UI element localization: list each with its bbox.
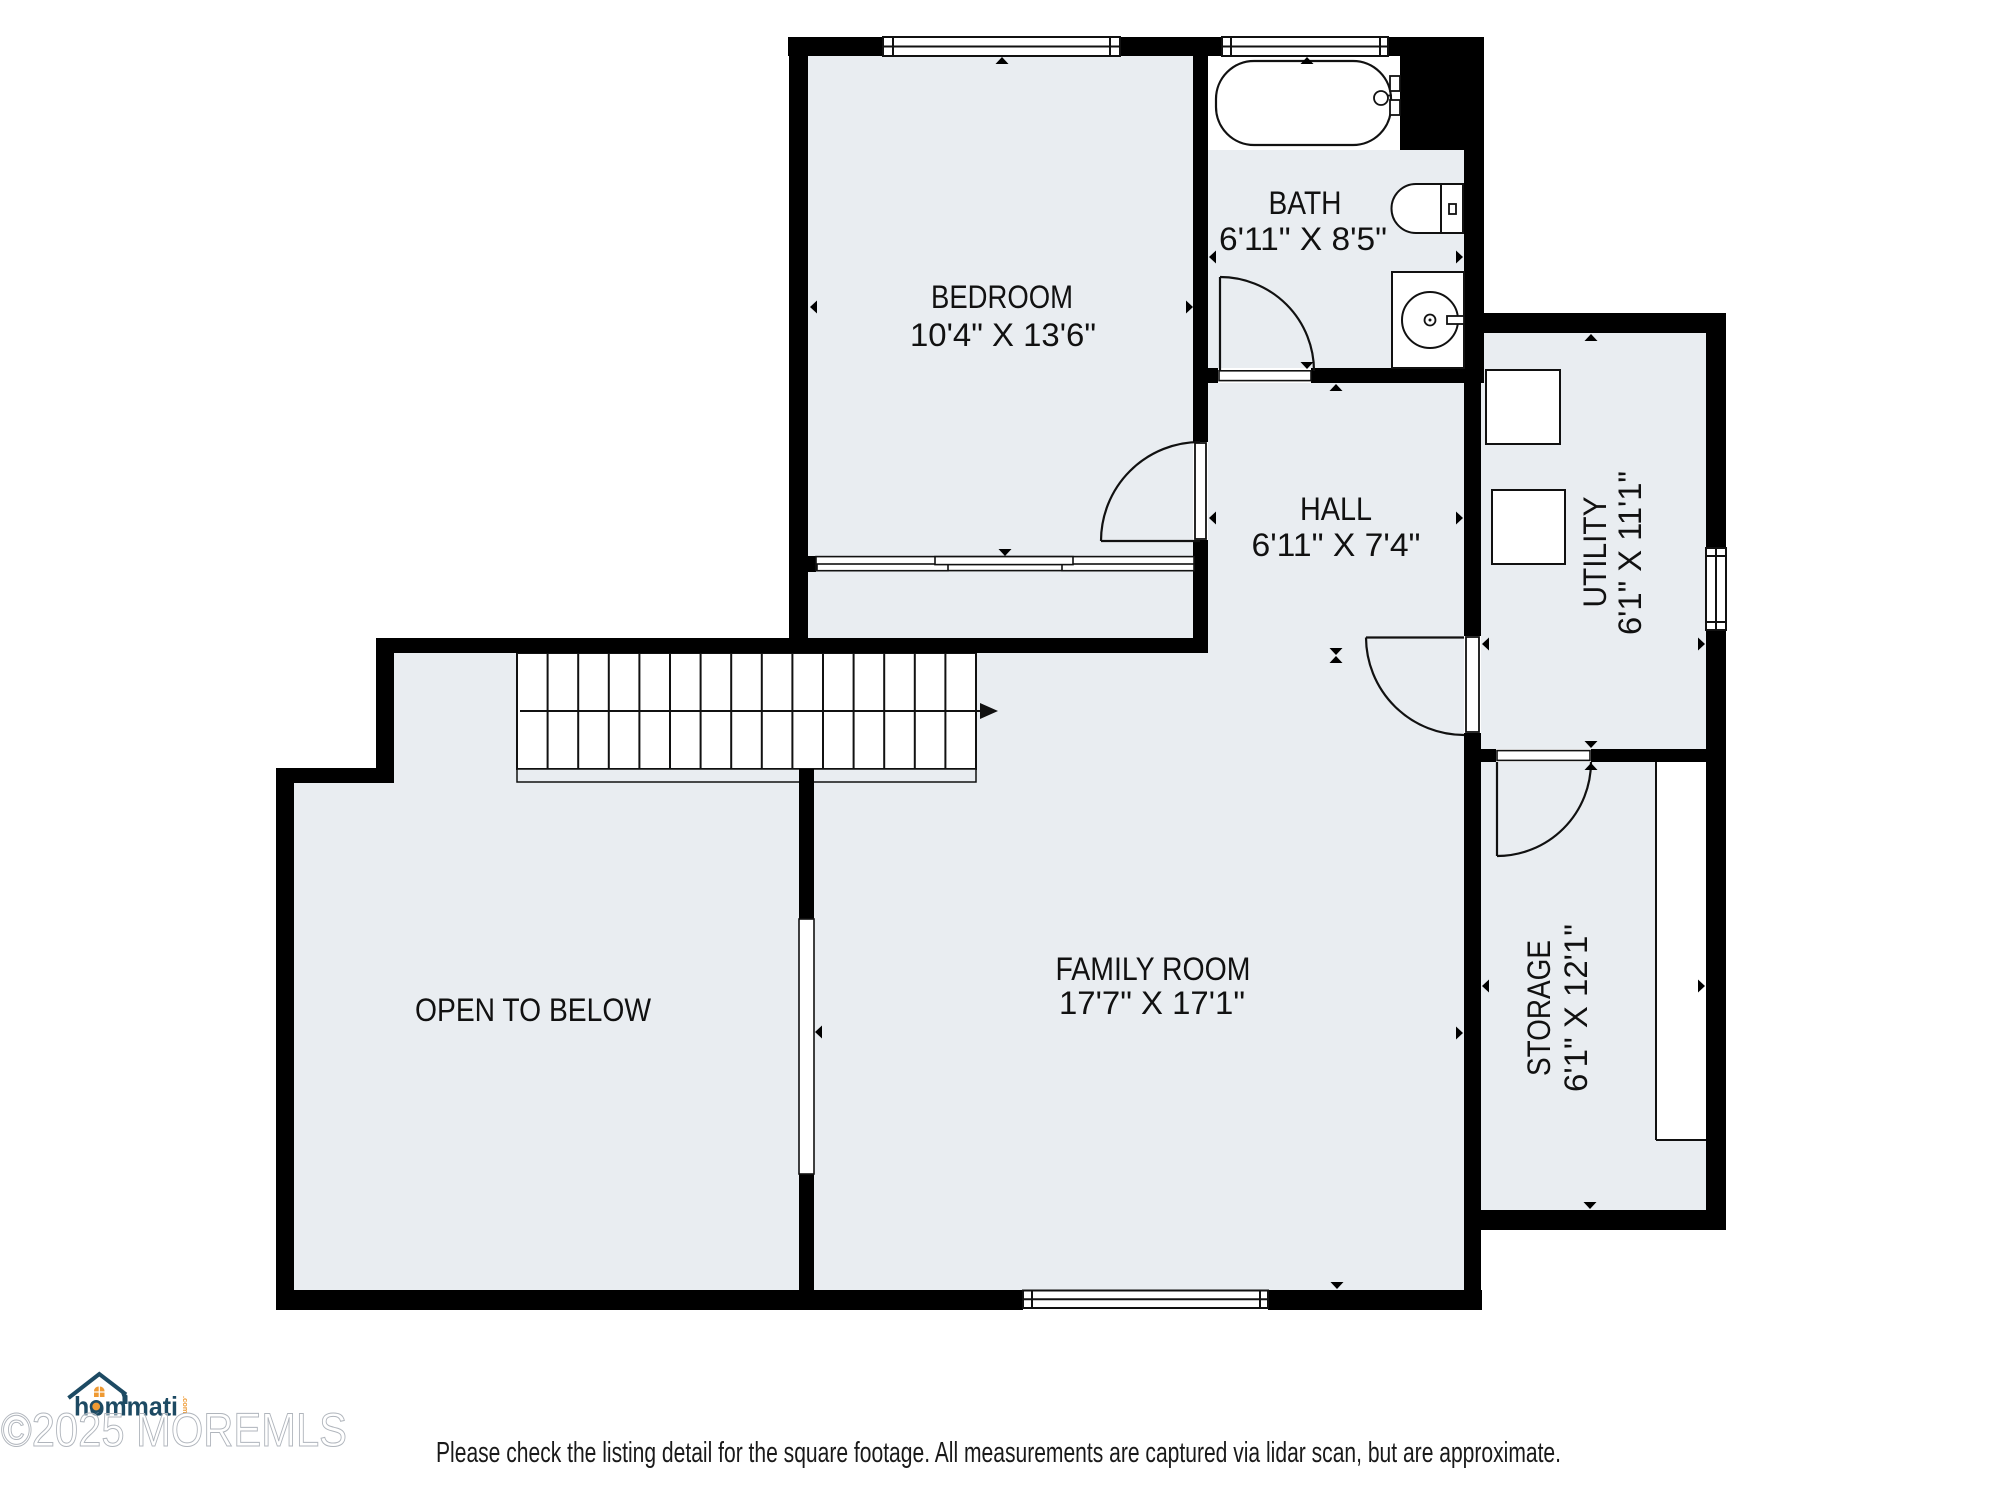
svg-text:BEDROOM: BEDROOM [931, 279, 1073, 315]
svg-text:6'1" X 11'1": 6'1" X 11'1" [1612, 471, 1648, 635]
svg-text:Please check the listing detai: Please check the listing detail for the … [436, 1437, 1561, 1469]
svg-text:FAMILY ROOM: FAMILY ROOM [1056, 951, 1251, 987]
svg-text:OPEN TO BELOW: OPEN TO BELOW [415, 992, 652, 1028]
svg-text:BATH: BATH [1269, 185, 1342, 221]
svg-text:UTILITY: UTILITY [1577, 497, 1613, 608]
svg-text:6'11" X 7'4": 6'11" X 7'4" [1252, 527, 1421, 563]
svg-text:6'1" X 12'1": 6'1" X 12'1" [1558, 924, 1594, 1092]
svg-text:HALL: HALL [1300, 491, 1372, 527]
svg-text:STORAGE: STORAGE [1521, 940, 1557, 1076]
svg-text:6'11" X 8'5": 6'11" X 8'5" [1219, 221, 1387, 257]
svg-text:10'4" X 13'6": 10'4" X 13'6" [910, 317, 1096, 353]
svg-text:©2025 MOREMLS: ©2025 MOREMLS [1, 1403, 347, 1456]
svg-text:17'7" X 17'1": 17'7" X 17'1" [1059, 985, 1245, 1021]
